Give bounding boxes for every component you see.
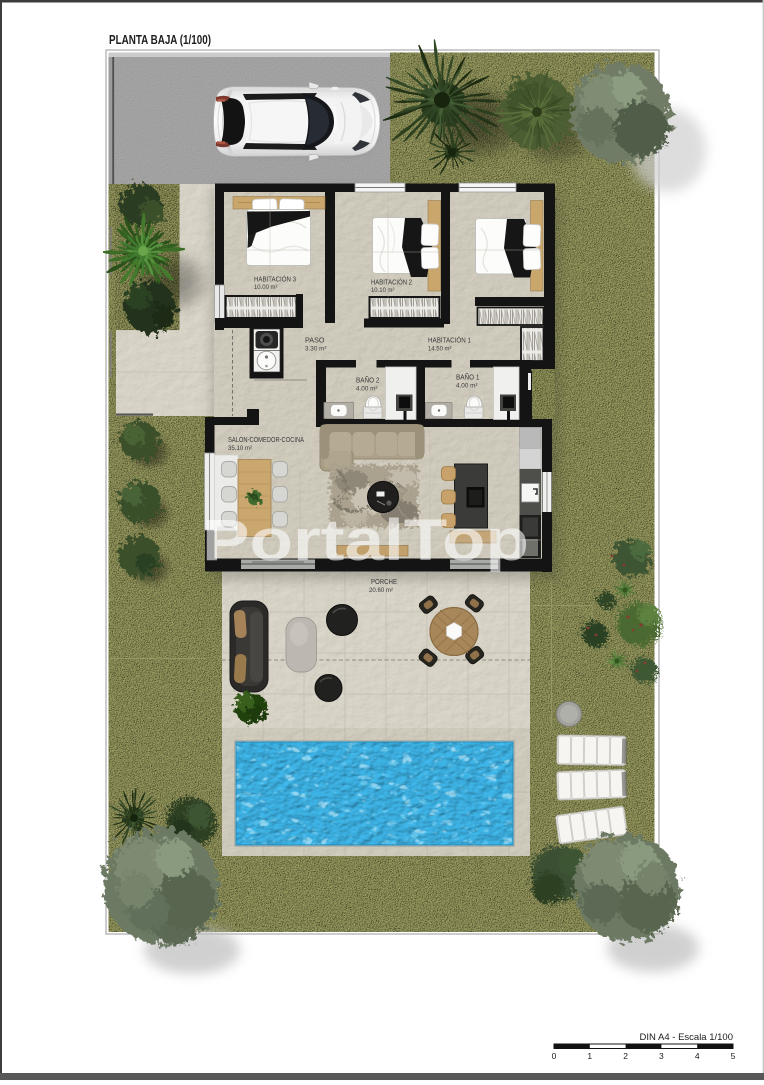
svg-text:SALÓN-COMEDOR-COCINA: SALÓN-COMEDOR-COCINA: [228, 435, 304, 444]
svg-text:20.60 m²: 20.60 m²: [369, 587, 394, 594]
svg-text:4.00 m²: 4.00 m²: [356, 386, 378, 393]
svg-text:4: 4: [695, 1051, 700, 1061]
svg-text:HABITACIÓN 1: HABITACIÓN 1: [428, 336, 471, 345]
svg-text:PLANTA BAJA (1/100): PLANTA BAJA (1/100): [109, 32, 211, 47]
svg-text:14.50 m²: 14.50 m²: [428, 346, 452, 353]
svg-text:10.10 m²: 10.10 m²: [371, 287, 395, 294]
svg-text:HABITACIÓN 2: HABITACIÓN 2: [371, 278, 412, 287]
svg-text:10.00 m²: 10.00 m²: [254, 284, 278, 291]
svg-text:2: 2: [623, 1051, 628, 1061]
svg-text:BAÑO 2: BAÑO 2: [356, 376, 380, 385]
svg-text:3.30 m²: 3.30 m²: [305, 346, 327, 353]
svg-text:0: 0: [552, 1051, 557, 1061]
svg-text:3: 3: [659, 1051, 664, 1061]
svg-text:35.10 m²: 35.10 m²: [228, 445, 253, 452]
svg-text:PORCHE: PORCHE: [371, 579, 397, 586]
svg-text:PASO: PASO: [305, 338, 325, 345]
svg-text:4.00 m²: 4.00 m²: [456, 383, 478, 390]
svg-text:5: 5: [731, 1051, 736, 1061]
svg-text:1: 1: [587, 1051, 592, 1061]
svg-text:HABITACIÓN 3: HABITACIÓN 3: [254, 275, 296, 284]
svg-text:DIN A4 - Escala 1/100: DIN A4 - Escala 1/100: [640, 1032, 733, 1043]
svg-text:PortalTop: PortalTop: [202, 508, 529, 573]
svg-text:BAÑO 1: BAÑO 1: [456, 373, 480, 382]
